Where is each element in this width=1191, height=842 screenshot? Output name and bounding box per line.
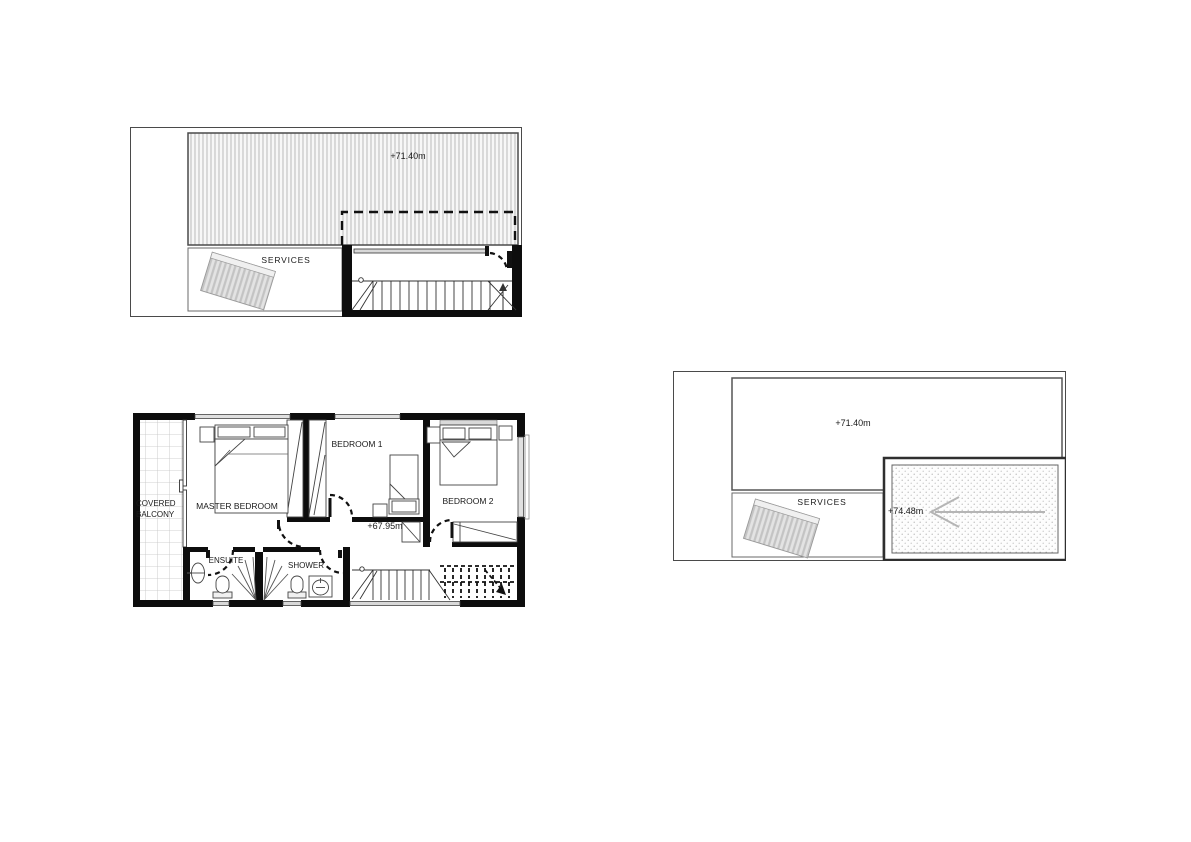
master-bed (200, 425, 288, 513)
stair-door-arc (490, 251, 512, 270)
staircase-dashed (440, 566, 517, 598)
shower-toilet-icon (288, 576, 306, 598)
roof-plan-left (130, 127, 522, 317)
shower-sink-icon (309, 576, 332, 597)
services-label: SERVICES (772, 497, 872, 507)
wardrobe (453, 522, 517, 542)
covered-balcony-label: COVERED BALCONY (136, 498, 186, 520)
roof-level-label: +71.40m (803, 418, 903, 428)
ensuite-label: ENSUITE (186, 556, 266, 565)
floor-level-label: +67.95m (335, 521, 435, 531)
roof-level-label: +71.40m (358, 151, 458, 161)
nightstand (499, 426, 512, 440)
staircase (352, 278, 516, 310)
down-arrow-icon (496, 584, 506, 595)
nightstand (200, 427, 214, 442)
roof-plan-right (673, 371, 1066, 561)
services-label: SERVICES (236, 255, 336, 265)
nightstand (427, 427, 440, 443)
ensuite-toilet-icon (213, 576, 232, 598)
staircase-solid (352, 567, 450, 600)
stair-railing (354, 246, 489, 256)
drawing-sheet: +71.40m SERVICES COVERED BALCONY MASTER … (0, 0, 1191, 842)
master-bedroom-label: MASTER BEDROOM (187, 501, 287, 511)
shower-label: SHOWER (266, 561, 346, 570)
bedroom1-bed (373, 455, 419, 517)
roof-hatch (188, 133, 518, 245)
bedroom2-bed (427, 420, 512, 485)
bedroom2-label: BEDROOM 2 (418, 496, 518, 506)
bedroom1-label: BEDROOM 1 (307, 439, 407, 449)
side-table (373, 504, 387, 517)
ramp-level-label: +74.48m (888, 506, 958, 516)
